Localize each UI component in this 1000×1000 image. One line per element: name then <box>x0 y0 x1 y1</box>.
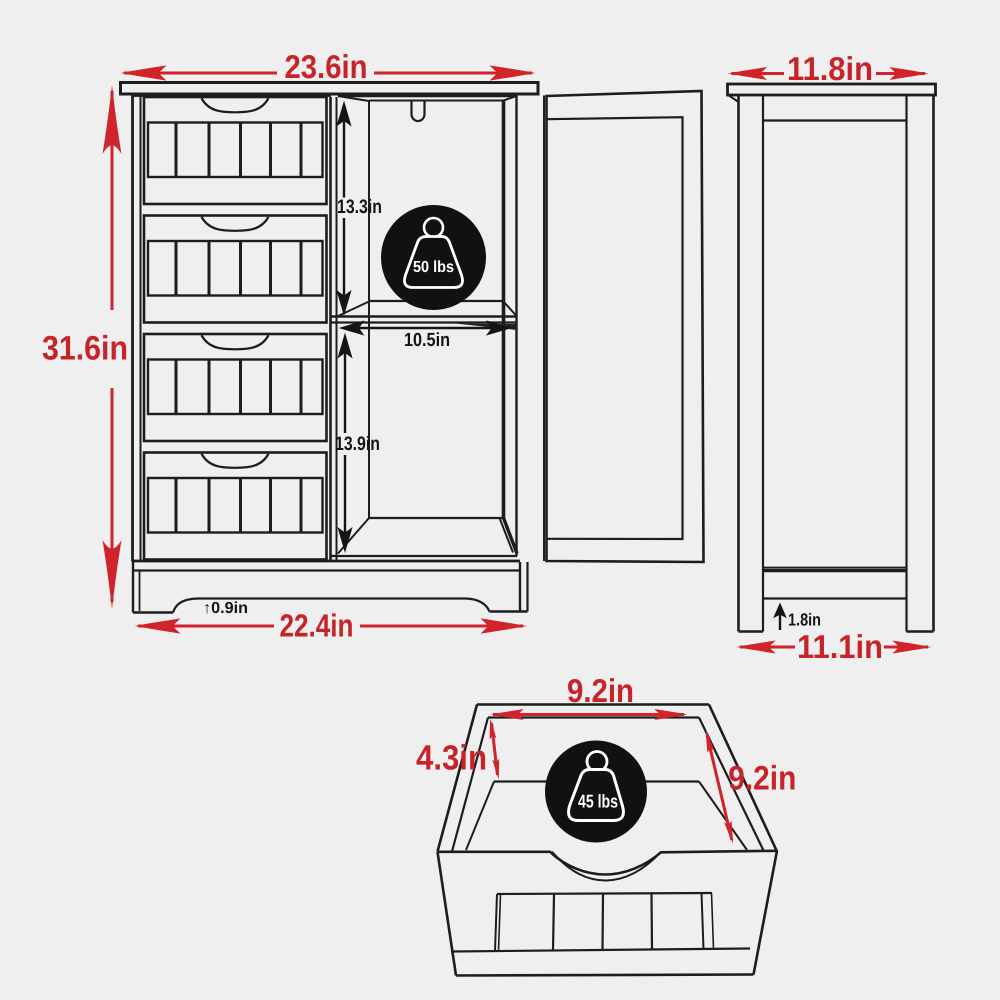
svg-text:50 lbs: 50 lbs <box>413 259 454 276</box>
svg-text:9.2in: 9.2in <box>567 672 634 709</box>
svg-text:9.2in: 9.2in <box>728 760 796 798</box>
svg-text:31.6in: 31.6in <box>42 330 128 368</box>
svg-text:45 lbs: 45 lbs <box>578 791 618 812</box>
svg-text:4.3in: 4.3in <box>416 739 487 778</box>
svg-text:↑0.9in: ↑0.9in <box>203 600 248 617</box>
svg-text:22.4in: 22.4in <box>280 608 354 644</box>
svg-text:11.1in: 11.1in <box>797 628 883 665</box>
svg-text:11.8in: 11.8in <box>787 50 873 87</box>
svg-text:13.3in: 13.3in <box>337 196 382 218</box>
svg-text:1.8in: 1.8in <box>788 610 821 630</box>
svg-text:23.6in: 23.6in <box>285 48 368 85</box>
svg-text:13.9in: 13.9in <box>335 433 380 455</box>
svg-text:10.5in: 10.5in <box>404 330 450 351</box>
